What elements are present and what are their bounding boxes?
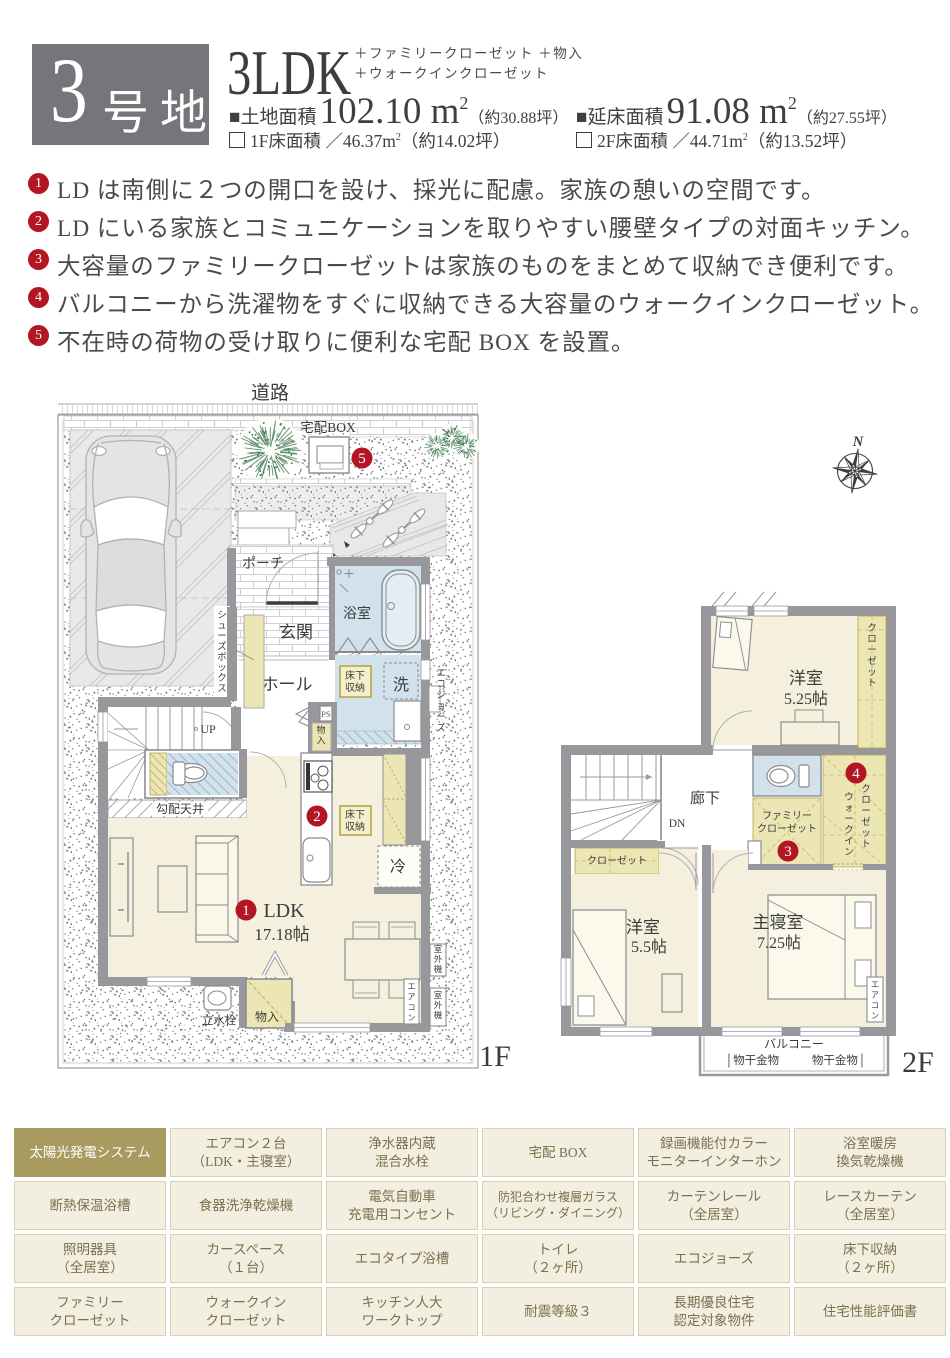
svg-text:ー: ー [844, 815, 854, 825]
svg-text:5: 5 [358, 451, 366, 467]
svg-text:1F: 1F [479, 1040, 511, 1073]
svg-text:ー: ー [867, 646, 877, 656]
svg-text:2F: 2F [902, 1046, 934, 1079]
svg-text:床下: 床下 [345, 808, 365, 821]
svg-text:ー: ー [217, 632, 227, 642]
svg-text:イ: イ [844, 837, 854, 847]
svg-text:4: 4 [852, 766, 860, 782]
svg-text:ロ: ロ [861, 796, 871, 806]
svg-text:2: 2 [313, 809, 321, 825]
svg-text:ッ: ッ [861, 829, 871, 839]
svg-text:ン: ン [844, 848, 854, 858]
svg-text:物: 物 [316, 724, 325, 735]
svg-text:ョ: ョ [436, 702, 446, 712]
svg-text:物入: 物入 [255, 1010, 279, 1024]
svg-text:ポーチ: ポーチ [242, 556, 284, 572]
svg-text:収納: 収納 [345, 681, 365, 694]
svg-text:宅配BOX: 宅配BOX [300, 420, 356, 435]
svg-text:ズ: ズ [217, 641, 227, 653]
svg-text:ズ: ズ [436, 722, 446, 734]
svg-text:室: 室 [434, 944, 443, 954]
svg-text:床下: 床下 [345, 669, 365, 682]
svg-text:ボ: ボ [217, 652, 227, 663]
svg-text:室: 室 [434, 990, 443, 1000]
svg-text:シ: シ [217, 611, 227, 621]
svg-text:ク: ク [867, 623, 877, 634]
svg-text:ジ: ジ [436, 691, 446, 701]
svg-text:ホール: ホール [262, 675, 313, 694]
svg-text:コ: コ [408, 1003, 416, 1012]
svg-text:LDK: LDK [263, 900, 305, 922]
svg-text:洋室: 洋室 [626, 918, 660, 937]
svg-text:3: 3 [784, 844, 792, 860]
svg-text:浴室: 浴室 [343, 605, 371, 622]
svg-text:エ: エ [436, 669, 446, 679]
svg-text:ォ: ォ [844, 804, 854, 814]
svg-text:機: 機 [434, 964, 443, 974]
svg-text:立水栓: 立水栓 [202, 1013, 237, 1027]
svg-text:ク: ク [844, 825, 854, 836]
svg-text:N: N [852, 434, 864, 450]
svg-text:7.25帖: 7.25帖 [757, 934, 801, 952]
svg-text:ゼ: ゼ [861, 816, 871, 828]
svg-text:道路: 道路 [251, 382, 289, 404]
svg-text:17.18帖: 17.18帖 [254, 925, 309, 944]
svg-text:ト: ト [861, 840, 871, 850]
svg-text:ウ: ウ [844, 792, 854, 803]
svg-text:勾配天井: 勾配天井 [156, 802, 204, 816]
svg-text:洋室: 洋室 [789, 669, 823, 688]
svg-text:5.5帖: 5.5帖 [631, 938, 667, 956]
svg-text:5.25帖: 5.25帖 [784, 690, 828, 708]
svg-text:ク: ク [861, 784, 871, 795]
svg-text:ア: ア [871, 991, 879, 1000]
svg-text:ー: ー [861, 807, 871, 817]
svg-text:ア: ア [408, 993, 416, 1002]
svg-text:ン: ン [871, 1012, 879, 1021]
svg-text:ク: ク [217, 673, 227, 684]
svg-text:ロ: ロ [867, 635, 877, 645]
svg-text:ュ: ュ [217, 622, 227, 632]
svg-text:廊下: 廊下 [690, 790, 720, 807]
svg-text:エ: エ [871, 980, 879, 989]
svg-text:ゼ: ゼ [867, 655, 877, 667]
svg-text:PS: PS [321, 709, 331, 719]
svg-text:玄関: 玄関 [279, 623, 313, 642]
svg-text:バルコニー: バルコニー [764, 1037, 824, 1051]
svg-text:ッ: ッ [867, 668, 877, 678]
svg-text:収納: 収納 [345, 820, 365, 833]
svg-text:クローゼット: クローゼット [587, 855, 647, 867]
svg-text:ッ: ッ [217, 664, 227, 674]
svg-text:ファミリー: ファミリー [762, 811, 812, 822]
svg-text:主寝室: 主寝室 [753, 912, 804, 932]
svg-text:ー: ー [436, 713, 446, 723]
svg-text:ス: ス [217, 685, 227, 695]
svg-text:1: 1 [242, 903, 250, 919]
svg-text:外: 外 [434, 1000, 443, 1010]
svg-text:ン: ン [408, 1014, 416, 1023]
svg-text:機: 機 [434, 1010, 443, 1020]
svg-text:DN: DN [669, 818, 686, 830]
svg-text:ト: ト [867, 679, 877, 689]
svg-text:│物干金物: │物干金物 [725, 1053, 779, 1068]
svg-text:物干金物│: 物干金物│ [812, 1053, 866, 1068]
svg-text:エ: エ [408, 982, 416, 991]
svg-text:洗: 洗 [393, 676, 409, 694]
svg-text:冷: 冷 [390, 858, 406, 876]
svg-text:クローゼット: クローゼット [757, 823, 817, 835]
svg-text:コ: コ [871, 1001, 879, 1010]
svg-text:UP: UP [200, 722, 216, 736]
svg-text:外: 外 [434, 954, 443, 964]
svg-text:コ: コ [436, 680, 446, 690]
svg-text:入: 入 [316, 736, 325, 746]
